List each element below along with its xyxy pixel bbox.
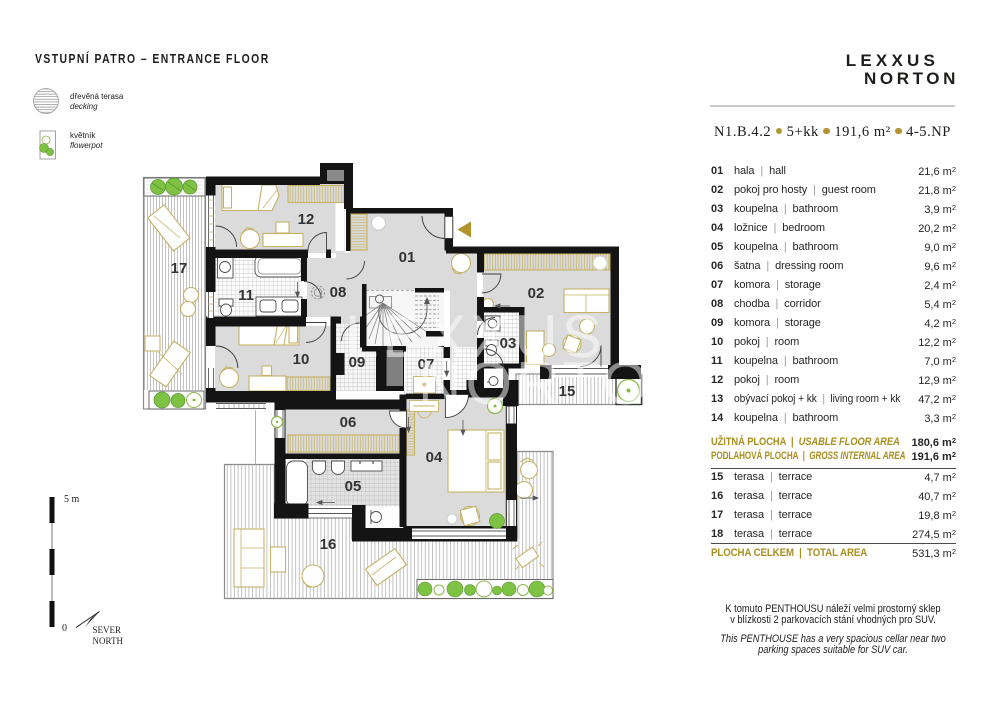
svg-text:10: 10 [293,351,310,368]
svg-text:5 m: 5 m [64,494,80,505]
svg-text:02: 02 [528,285,545,302]
svg-text:0: 0 [62,623,67,634]
svg-text:16: 16 [320,536,337,553]
svg-text:NORTH: NORTH [93,636,124,646]
svg-text:04: 04 [426,449,443,466]
svg-text:17: 17 [171,260,188,277]
svg-text:NORTON: NORTON [418,350,700,417]
svg-text:08: 08 [330,284,347,301]
svg-text:06: 06 [340,414,357,431]
svg-text:01: 01 [399,249,416,266]
svg-text:11: 11 [238,287,254,304]
svg-text:12: 12 [298,211,315,228]
svg-text:SEVER: SEVER [93,625,122,635]
svg-text:05: 05 [345,478,362,495]
